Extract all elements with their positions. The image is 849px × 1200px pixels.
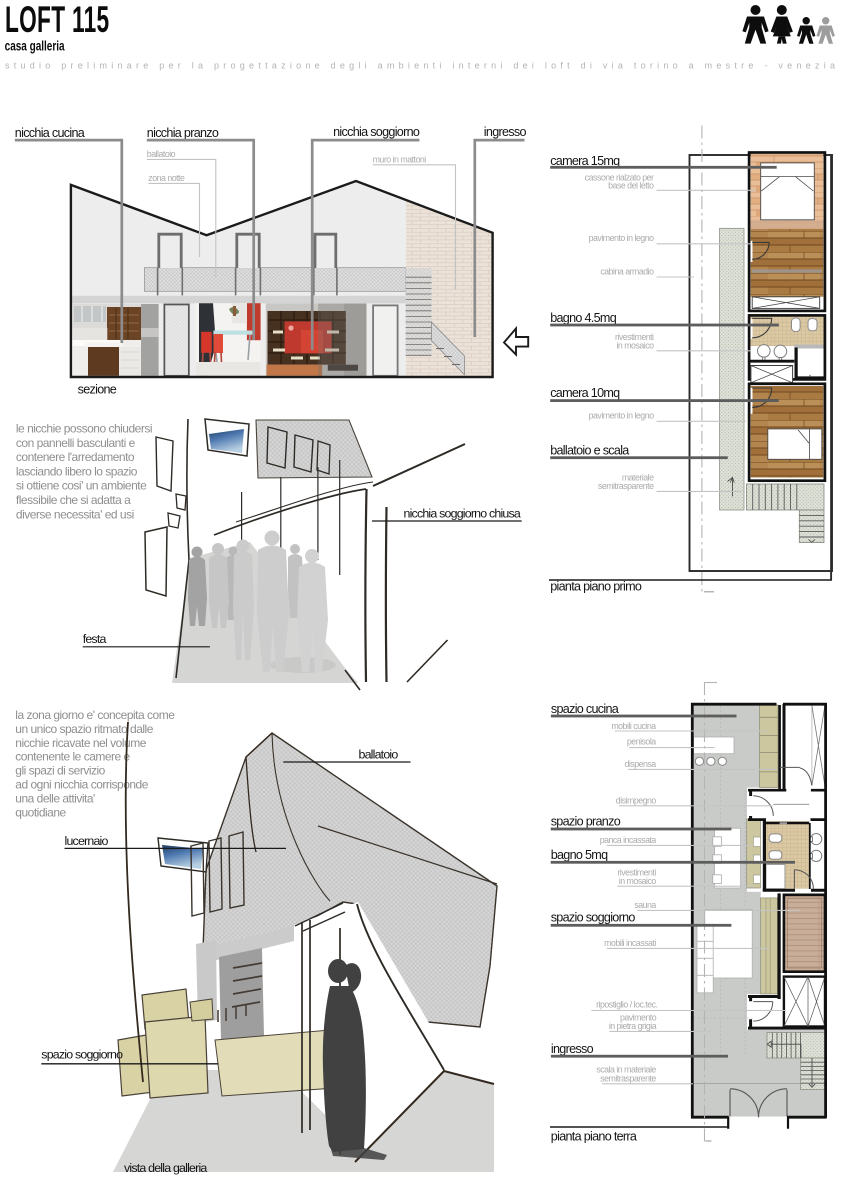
svg-text:spazio soggiorno: spazio soggiorno xyxy=(551,911,636,925)
svg-text:sauna: sauna xyxy=(634,900,656,910)
svg-text:semitrasparente: semitrasparente xyxy=(598,481,654,491)
svg-text:in mosaico: in mosaico xyxy=(616,340,654,350)
svg-text:LOFT 115: LOFT 115 xyxy=(5,0,110,40)
svg-text:pianta piano terra: pianta piano terra xyxy=(551,1130,637,1144)
svg-text:nicchia soggiorno chiusa: nicchia soggiorno chiusa xyxy=(404,507,521,521)
svg-text:sezione: sezione xyxy=(78,383,117,397)
svg-text:base del letto: base del letto xyxy=(608,180,654,190)
svg-text:ad ogni nicchia corrisponde: ad ogni nicchia corrisponde xyxy=(15,778,148,792)
svg-text:pavimento in legno: pavimento in legno xyxy=(589,233,654,243)
svg-text:ballatoio: ballatoio xyxy=(359,748,399,762)
svg-text:disimpegno: disimpegno xyxy=(616,795,657,805)
svg-text:pavimento in legno: pavimento in legno xyxy=(589,411,654,421)
svg-text:in pietra grigia: in pietra grigia xyxy=(609,1021,657,1031)
svg-text:zona notte: zona notte xyxy=(148,173,185,183)
svg-text:flessibile che si adatta a: flessibile che si adatta a xyxy=(16,493,131,507)
svg-text:camera 15mq: camera 15mq xyxy=(550,154,620,168)
svg-text:un unico spazio ritmato dalle: un unico spazio ritmato dalle xyxy=(15,722,153,736)
svg-text:diverse necessita' ed usi: diverse necessita' ed usi xyxy=(16,507,134,521)
svg-text:muro in mattoni: muro in mattoni xyxy=(373,154,427,164)
svg-text:studio preliminare per la prog: studio preliminare per la progettazione … xyxy=(5,61,839,71)
svg-text:una delle attivita': una delle attivita' xyxy=(15,791,95,805)
svg-text:dispensa: dispensa xyxy=(624,759,656,769)
svg-text:in mosaico: in mosaico xyxy=(619,876,657,886)
svg-text:mobili incassati: mobili incassati xyxy=(604,938,656,948)
svg-text:camera 10mq: camera 10mq xyxy=(550,386,620,400)
svg-text:pianta piano primo: pianta piano primo xyxy=(550,580,642,594)
svg-text:lucernaio: lucernaio xyxy=(65,834,109,848)
svg-text:la zona giorno e' concepita co: la zona giorno e' concepita come xyxy=(15,708,175,722)
svg-text:quotidiane: quotidiane xyxy=(15,805,66,819)
svg-text:bagno 5mq: bagno 5mq xyxy=(551,848,608,862)
svg-text:vista della galleria: vista della galleria xyxy=(124,1161,207,1175)
svg-text:festa: festa xyxy=(83,632,107,646)
svg-text:cabina armadio: cabina armadio xyxy=(600,267,654,277)
svg-text:le nicchie possono chiudersi: le nicchie possono chiudersi xyxy=(16,422,152,436)
svg-text:nicchia pranzo: nicchia pranzo xyxy=(147,126,219,140)
svg-text:spazio soggiorno: spazio soggiorno xyxy=(41,1047,123,1061)
svg-text:mobili cucina: mobili cucina xyxy=(611,721,656,731)
svg-text:ripostiglio / loc.tec.: ripostiglio / loc.tec. xyxy=(596,1000,657,1010)
svg-text:panca incassata: panca incassata xyxy=(600,835,657,845)
svg-text:ballatoio: ballatoio xyxy=(147,149,176,159)
svg-text:ingresso: ingresso xyxy=(551,1042,594,1056)
svg-text:con pannelli basculanti e: con pannelli basculanti e xyxy=(16,436,136,450)
svg-text:gli spazi di servizio: gli spazi di servizio xyxy=(15,764,105,778)
svg-text:ballatoio e scala: ballatoio e scala xyxy=(550,443,629,457)
svg-text:contenere l'arredamento: contenere l'arredamento xyxy=(16,450,135,464)
svg-text:penisola: penisola xyxy=(627,737,656,747)
svg-text:si ottiene cosi' un ambiente: si ottiene cosi' un ambiente xyxy=(16,479,147,493)
svg-text:casa galleria: casa galleria xyxy=(5,38,65,54)
svg-text:nicchia soggiorno: nicchia soggiorno xyxy=(333,125,420,139)
svg-text:ingresso: ingresso xyxy=(484,125,527,139)
svg-text:spazio cucina: spazio cucina xyxy=(551,702,619,716)
svg-text:lasciando libero lo spazio: lasciando libero lo spazio xyxy=(16,464,138,478)
svg-text:contenente le camere e: contenente le camere e xyxy=(15,750,130,764)
svg-text:spazio pranzo: spazio pranzo xyxy=(551,814,621,828)
svg-text:nicchia cucina: nicchia cucina xyxy=(15,126,85,140)
svg-text:bagno 4.5mq: bagno 4.5mq xyxy=(550,311,617,325)
svg-text:semitrasparente: semitrasparente xyxy=(600,1074,656,1084)
